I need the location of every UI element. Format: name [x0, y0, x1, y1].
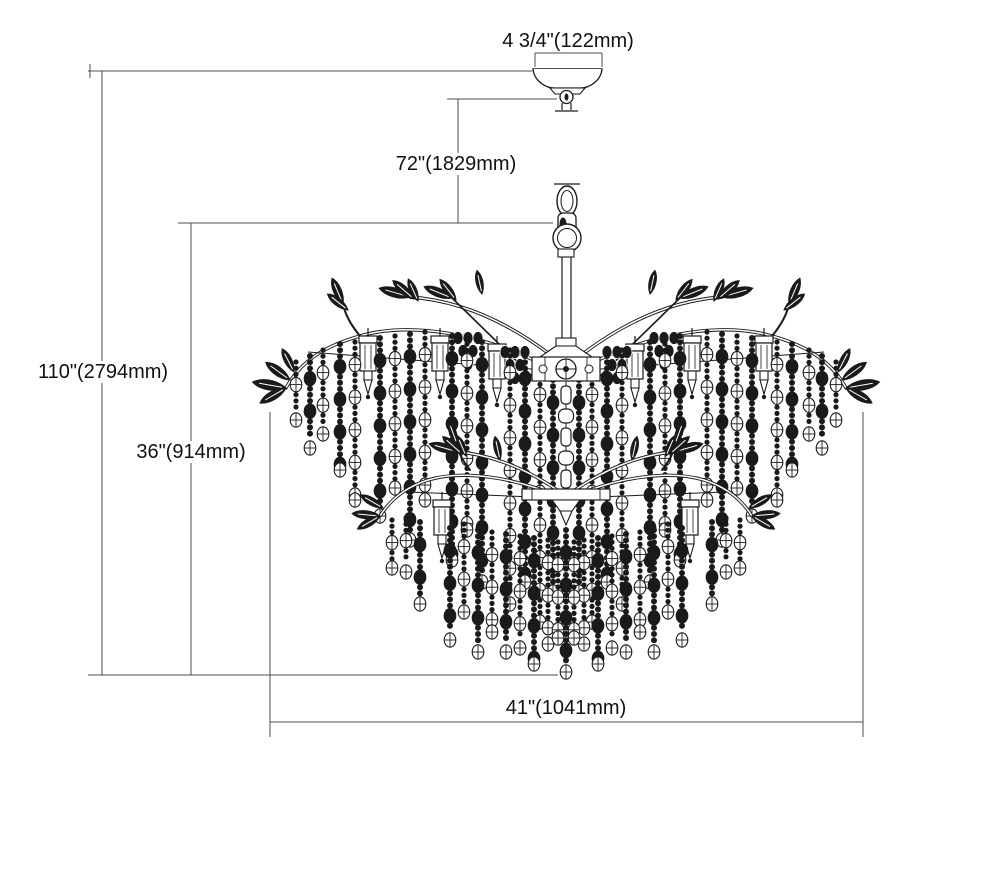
dim-label-canopy-width: 4 3/4"(122mm): [499, 30, 637, 52]
dim-label-fixture-width: 41"(1041mm): [503, 697, 629, 719]
dim-label-fixture-height: 36"(914mm): [133, 441, 248, 463]
dim-label-overall-height: 110"(2794mm): [35, 361, 171, 383]
left-branches: [252, 270, 566, 671]
dim-label-hanging-height: 72"(1829mm): [393, 153, 519, 175]
right-branches: [566, 270, 880, 671]
chandelier-line-drawing: [0, 0, 990, 879]
chandelier: [252, 69, 881, 679]
diagram-canvas: 4 3/4"(122mm) 72"(1829mm) 110"(2794mm) 3…: [0, 0, 990, 879]
